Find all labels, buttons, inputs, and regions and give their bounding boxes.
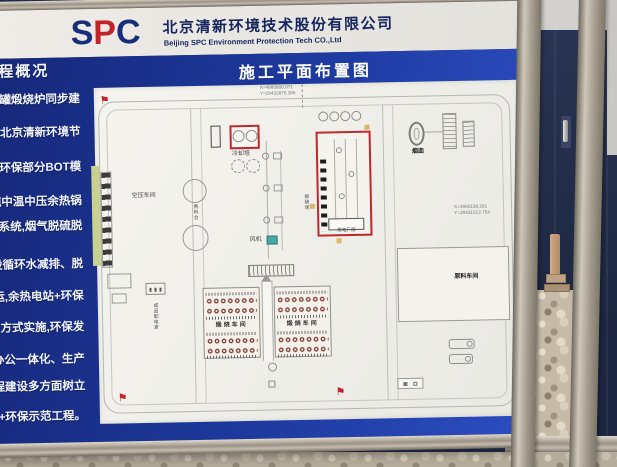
kiln-label: 煅烧车间 [204,319,259,329]
logo-letter-s: S [70,14,93,52]
power-plant-box: 发电厂房 [316,131,373,237]
sidebar-line: C+环保部分BOT模 [0,158,81,176]
aux-building [107,273,131,288]
legend-box [397,378,423,389]
red-flag-icon: ⚑ [118,393,128,403]
fan-box [267,235,278,244]
kiln-building-right: 煅烧车间 [274,285,332,357]
site-plan: X=4980800.971 Y=29432875.366 ⚑ ⚑ ⚑ 冷却塔 [94,80,524,424]
label-box [145,283,165,295]
marker-patch [337,238,342,243]
marker-patch [364,125,369,130]
building-block [210,126,220,148]
power-plant-label: 发电厂房 [328,218,364,231]
truck [449,354,473,364]
aux-building [112,293,127,303]
sign-panel: 程概况 64罐煅烧炉同步建 由北京清新环境节 C+环保部分BOT模 吨中温中压余… [0,49,532,444]
sidebar-line: 投运,余热电站+环保 [0,287,84,305]
sidebar-line: 生产办公一体化、生产 [0,350,85,368]
coordinate-label-top: X=4980800.971 Y=29432875.366 [260,85,306,99]
sidebar-line: 步建设循环水减排、脱 [0,255,83,273]
logo-letter-p: P [93,14,116,52]
logo-letter-c: C [116,13,141,51]
kiln-building-left: 煅烧车间 [203,287,261,359]
spc-logo: SPC [70,12,141,53]
sign-board: SPC 北京清新环境技术股份有限公司 Beijing SPC Environme… [0,0,533,458]
marker-patch [310,204,315,209]
sidebar-heading: 程概况 [0,60,50,82]
boiler-structure [442,113,457,149]
center-road [261,281,274,361]
sidebar-line: 设的方式实施,环保发 [0,318,84,336]
red-flag-icon: ⚑ [335,387,345,397]
sidebar-line: 程、工程建设多方面树立 [0,377,86,395]
red-flag-icon: ⚑ [99,95,110,106]
sidebar: 程概况 64罐煅烧炉同步建 由北京清新环境节 C+环保部分BOT模 吨中温中压余… [0,57,90,444]
cooling-tower-label: 冷却塔 [232,151,250,158]
transformer-bays [318,111,361,122]
chimney [408,122,424,146]
manhole-circle [268,362,277,371]
distribution-room-label: 成品配电室 [151,303,159,338]
boiler-structure [462,121,474,147]
left-workshop-label: 空压车间 [132,193,156,200]
company-name-cn: 北京清新环境技术股份有限公司 [162,12,393,37]
desulfurizer-label: 脱硫塔 [302,194,309,215]
coordinate-label-right: X=4980138.291 Y=29431012.754 [454,204,500,218]
clinker-silo-label: 熟料仓 [191,204,198,225]
brick-stack [543,234,573,292]
door-handle-icon [561,116,571,148]
chimney-label: 烟囱 [412,149,424,156]
sidebar-line: 由北京清新环境节 [0,123,81,141]
road-arrow-icon [261,274,271,282]
kiln-label: 煅烧车间 [275,317,330,327]
photo-background: SPC 北京清新环境技术股份有限公司 Beijing SPC Environme… [0,0,617,467]
fan-label: 风机 [250,237,262,244]
raw-material-building: 原料车间 [397,246,510,322]
sidebar-line: 电+环保示范工程。 [0,407,86,425]
wall-sliver [607,0,617,155]
cooling-tower-box [229,125,259,150]
sidebar-line: 64罐煅烧炉同步建 [0,90,80,108]
raw-material-label: 原料车间 [454,274,478,281]
sidebar-line: 吨中温中压余热锅 [0,192,82,210]
sidebar-line: 保系统,烟气脱硫脱 [0,217,82,235]
conveyor-corridor [100,172,113,268]
valve-square [268,381,275,388]
truck [449,339,475,349]
